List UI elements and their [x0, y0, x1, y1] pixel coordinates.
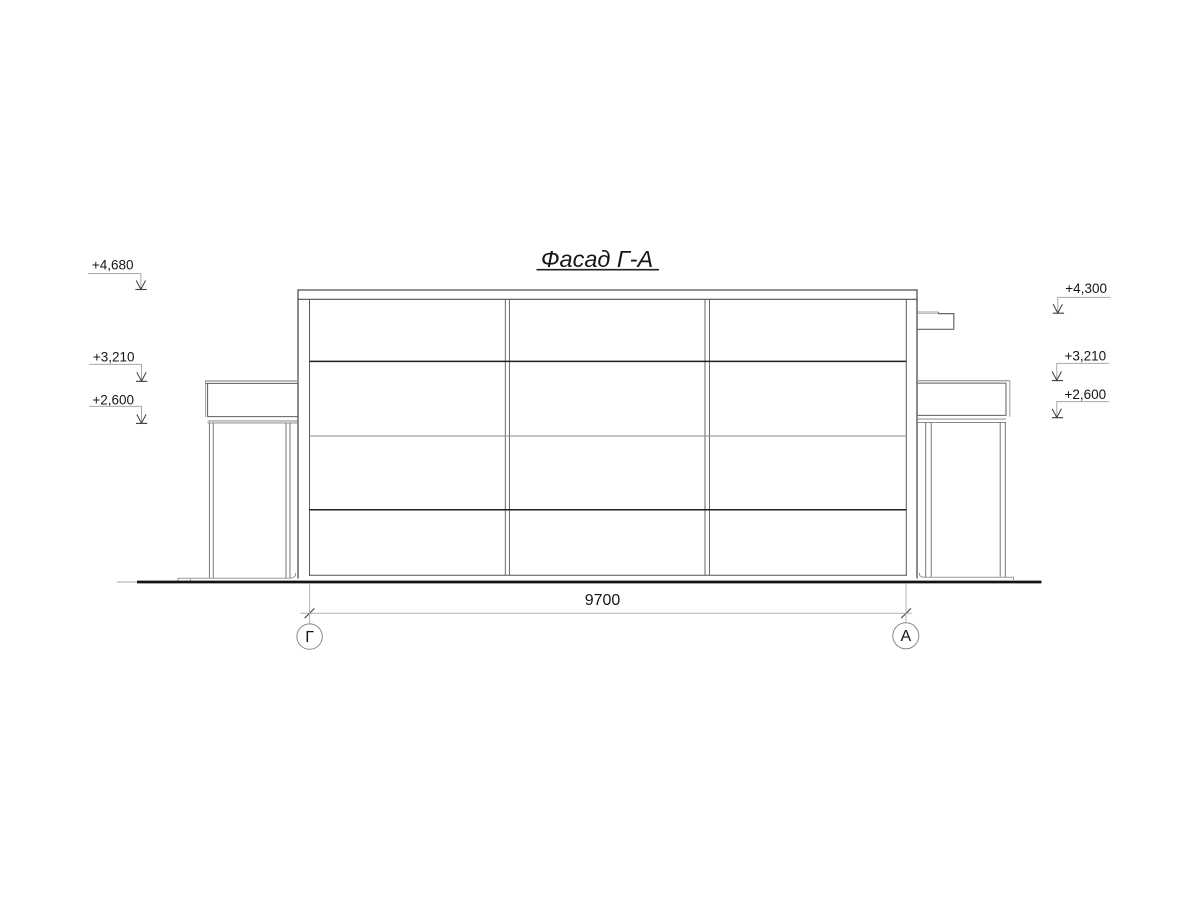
svg-text:А: А [900, 628, 911, 645]
svg-text:+3,210: +3,210 [93, 350, 135, 365]
svg-text:+2,600: +2,600 [1065, 387, 1107, 402]
svg-text:9700: 9700 [585, 592, 621, 609]
svg-text:+2,600: +2,600 [92, 393, 134, 408]
svg-text:Фасад Г-А: Фасад Г-А [541, 246, 653, 272]
svg-text:+4,680: +4,680 [92, 257, 134, 272]
svg-text:+4,300: +4,300 [1065, 281, 1107, 296]
svg-text:Г: Г [305, 629, 314, 646]
svg-text:+3,210: +3,210 [1065, 349, 1107, 364]
